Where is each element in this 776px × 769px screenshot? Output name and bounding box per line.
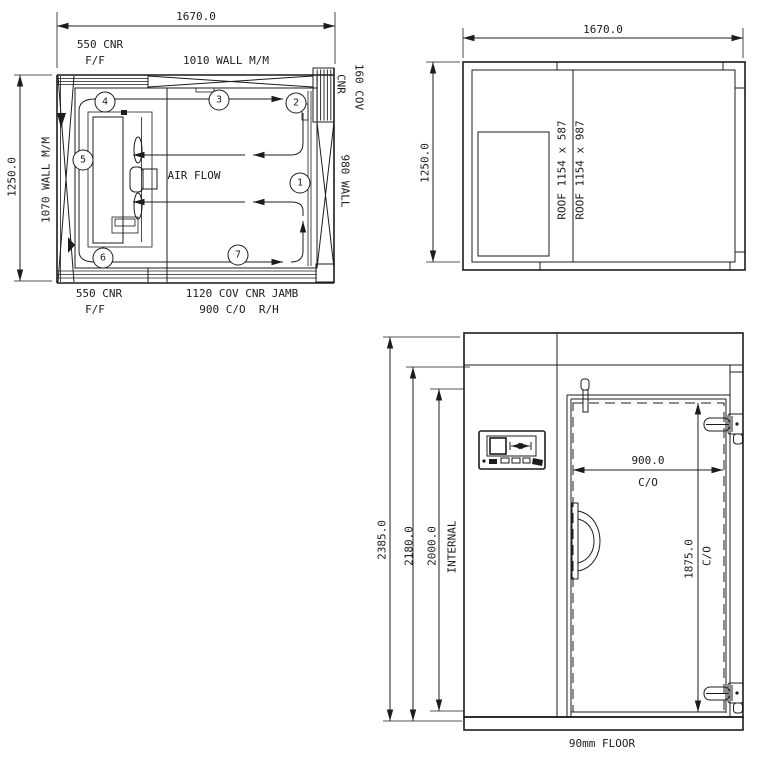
floor-label: 90mm FLOOR — [569, 737, 636, 750]
roof-panel2-label: ROOF 1154 x 987 — [574, 120, 587, 219]
svg-text:2: 2 — [293, 98, 299, 109]
roof-panel1-label: ROOF 1154 x 587 — [556, 120, 569, 219]
controller-icon — [479, 431, 545, 469]
elevation-internal-label: INTERNAL — [446, 520, 459, 573]
marker-5: 5 — [73, 150, 93, 170]
fan-motor — [143, 169, 157, 189]
plan-corner-bottom-sub: F/F — [85, 303, 105, 316]
wall-lock-mark-top — [57, 113, 66, 128]
door-height-unit: C/O — [701, 546, 714, 566]
plan-dimensions: 1670.0 1250.0 — [6, 10, 336, 281]
roof-outer — [463, 62, 745, 270]
marker-3: 3 — [209, 90, 229, 110]
floor-slab — [464, 717, 743, 730]
drawing-canvas: 1670.0 1250.0 550 CNR F/F 1010 WALL M/M … — [0, 0, 776, 764]
svg-text:4: 4 — [102, 97, 108, 108]
door-width-dim: 900.0 — [631, 454, 664, 467]
plan-top-wall-label: 1010 WALL M/M — [183, 54, 269, 67]
plan-opening-label: 900 C/O R/H — [199, 303, 278, 316]
evaporator-outline — [88, 112, 152, 247]
door-handle-icon — [572, 503, 600, 579]
marker-1: 1 — [290, 173, 310, 193]
plan-corner-bottom-label: 550 CNR — [76, 287, 123, 300]
marker-6: 6 — [93, 248, 113, 268]
marker-4: 4 — [95, 92, 115, 112]
svg-text:5: 5 — [80, 155, 86, 166]
plan-corner-top-sub: F/F — [85, 54, 105, 67]
controller-display — [490, 438, 506, 454]
svg-text:7: 7 — [235, 250, 241, 261]
roof-joint-ticks — [540, 62, 745, 270]
marker-7: 7 — [228, 245, 248, 265]
door-height-dim: 1875.0 — [683, 539, 696, 579]
roof-width-dim: 1670.0 — [583, 23, 623, 36]
evaporator-unit — [88, 110, 157, 247]
elevation-view: 2385.0 2180.0 2000.0 INTERNAL — [376, 333, 744, 750]
plan-left-wall-label: 1070 WALL M/M — [40, 137, 53, 223]
plan-view: 1670.0 1250.0 550 CNR F/F 1010 WALL M/M … — [6, 10, 366, 316]
svg-text:1: 1 — [297, 178, 303, 189]
plan-width-dim: 1670.0 — [176, 10, 216, 23]
elevation-dimensions: 2385.0 2180.0 2000.0 INTERNAL — [376, 337, 471, 721]
plan-corner-top-label: 550 CNR — [77, 38, 124, 51]
elevation-wall — [464, 333, 743, 717]
elevation-internal-dim: 2000.0 — [426, 526, 439, 566]
roof-height-dim: 1250.0 — [419, 143, 432, 183]
svg-text:6: 6 — [100, 253, 106, 264]
plan-right-wall-label: 980 WALL — [339, 155, 352, 208]
evaporator-coil — [93, 117, 123, 243]
coolroom-ga-drawing: 1670.0 1250.0 550 CNR F/F 1010 WALL M/M … — [0, 0, 776, 764]
marker-2: 2 — [286, 93, 306, 113]
plan-cov-cnr-label-2: CNR — [335, 74, 348, 94]
roof-view: 1670.0 1250.0 ROOF 1154 x 587 ROOF 1154 … — [419, 23, 746, 270]
door: 900.0 C/O 1875.0 C/O — [567, 379, 743, 717]
door-width-unit: C/O — [638, 476, 658, 489]
plan-jamb-label: 1120 COV CNR JAMB — [186, 287, 299, 300]
elevation-overall-dim: 2385.0 — [376, 520, 389, 560]
plan-cov-cnr-label-1: 160 COV — [353, 64, 366, 111]
elevation-external-dim: 2180.0 — [403, 526, 416, 566]
roof-inner — [472, 70, 735, 262]
roof-opening — [478, 132, 549, 256]
plan-height-dim: 1250.0 — [6, 157, 19, 197]
air-flow-label: AIR FLOW — [168, 169, 221, 182]
svg-text:3: 3 — [216, 95, 222, 106]
jamb-hatch-right — [316, 264, 334, 282]
jamb-hatch-left — [148, 268, 167, 283]
fan — [130, 137, 157, 219]
